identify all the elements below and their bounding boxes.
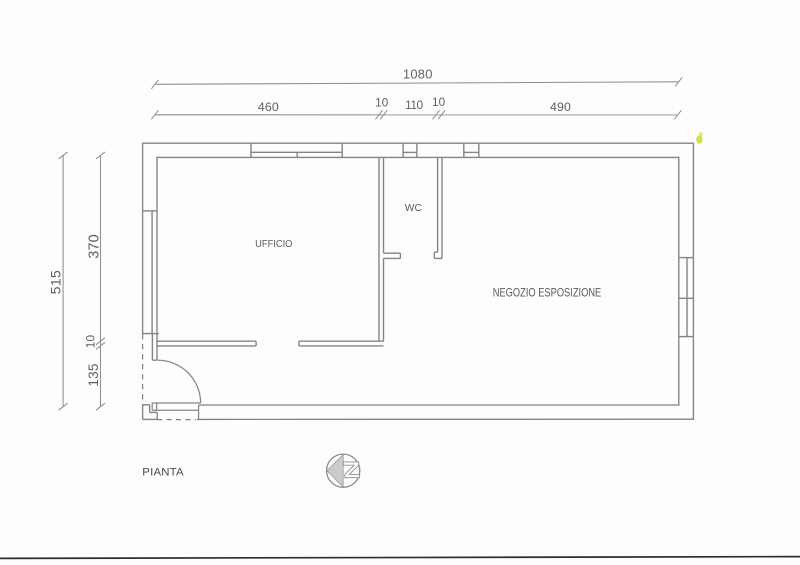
svg-text:10: 10 (84, 335, 98, 349)
svg-text:PIANTA: PIANTA (142, 467, 184, 479)
svg-text:UFFICIO: UFFICIO (255, 239, 292, 250)
svg-text:1080: 1080 (403, 66, 433, 81)
svg-text:370: 370 (86, 234, 102, 259)
svg-text:NEGOZIO ESPOSIZIONE: NEGOZIO ESPOSIZIONE (493, 287, 602, 300)
svg-text:460: 460 (258, 100, 279, 114)
svg-text:135: 135 (86, 363, 101, 386)
svg-text:490: 490 (550, 100, 571, 114)
svg-text:10: 10 (375, 97, 389, 110)
svg-text:110: 110 (405, 98, 423, 112)
svg-text:515: 515 (49, 270, 65, 294)
svg-text:WC: WC (405, 203, 422, 214)
svg-text:10: 10 (432, 96, 446, 109)
